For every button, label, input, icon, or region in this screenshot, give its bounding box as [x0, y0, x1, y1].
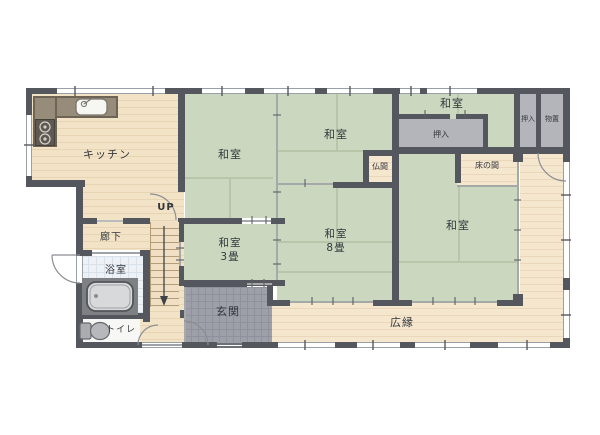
stove-burners — [40, 122, 50, 144]
sink-icon — [76, 99, 107, 115]
label-stairs-up: UP — [157, 201, 174, 215]
label-tokonoma: 床の間 — [475, 159, 499, 173]
label-washitsu-ne: 和室 — [440, 97, 464, 111]
label-butsuma: 仏間 — [372, 160, 388, 174]
label-toire: トイレ — [106, 323, 136, 337]
label-washitsu-8jo-size: 8畳 — [325, 241, 348, 255]
label-monooki: 物置 — [545, 112, 559, 126]
floor-plan: キッチン 和室 和室 和室 押入 押入 物置 仏間 床の間 UP 廊下 浴室 ト… — [0, 0, 600, 435]
label-washitsu-8jo: 和室 8畳 — [325, 227, 348, 255]
stair-arrow — [160, 226, 168, 306]
label-washitsu-nw: 和室 — [218, 148, 242, 162]
label-washitsu-3jo-size: 3畳 — [219, 250, 242, 264]
door-arc — [138, 325, 158, 345]
door-arc — [52, 255, 80, 283]
label-yokushitsu: 浴室 — [105, 264, 127, 278]
bathtub-icon — [87, 282, 133, 311]
label-oshiire-right: 押入 — [521, 112, 535, 126]
label-hiroen: 広縁 — [390, 316, 414, 330]
label-washitsu-3jo: 和室 3畳 — [219, 236, 242, 264]
label-rouka: 廊下 — [100, 231, 122, 245]
door-arc — [538, 153, 566, 181]
label-washitsu-8jo-name: 和室 — [325, 227, 348, 241]
label-washitsu-3jo-name: 和室 — [219, 236, 242, 250]
door-arc — [184, 321, 208, 345]
label-washitsu-se: 和室 — [446, 219, 470, 233]
label-genkan: 玄関 — [216, 305, 240, 319]
label-kitchen: キッチン — [83, 148, 131, 162]
label-oshiire-main: 押入 — [433, 128, 449, 142]
fusuma-ticks — [176, 110, 521, 305]
label-washitsu-n: 和室 — [324, 128, 348, 142]
plan-overlay — [0, 0, 600, 435]
